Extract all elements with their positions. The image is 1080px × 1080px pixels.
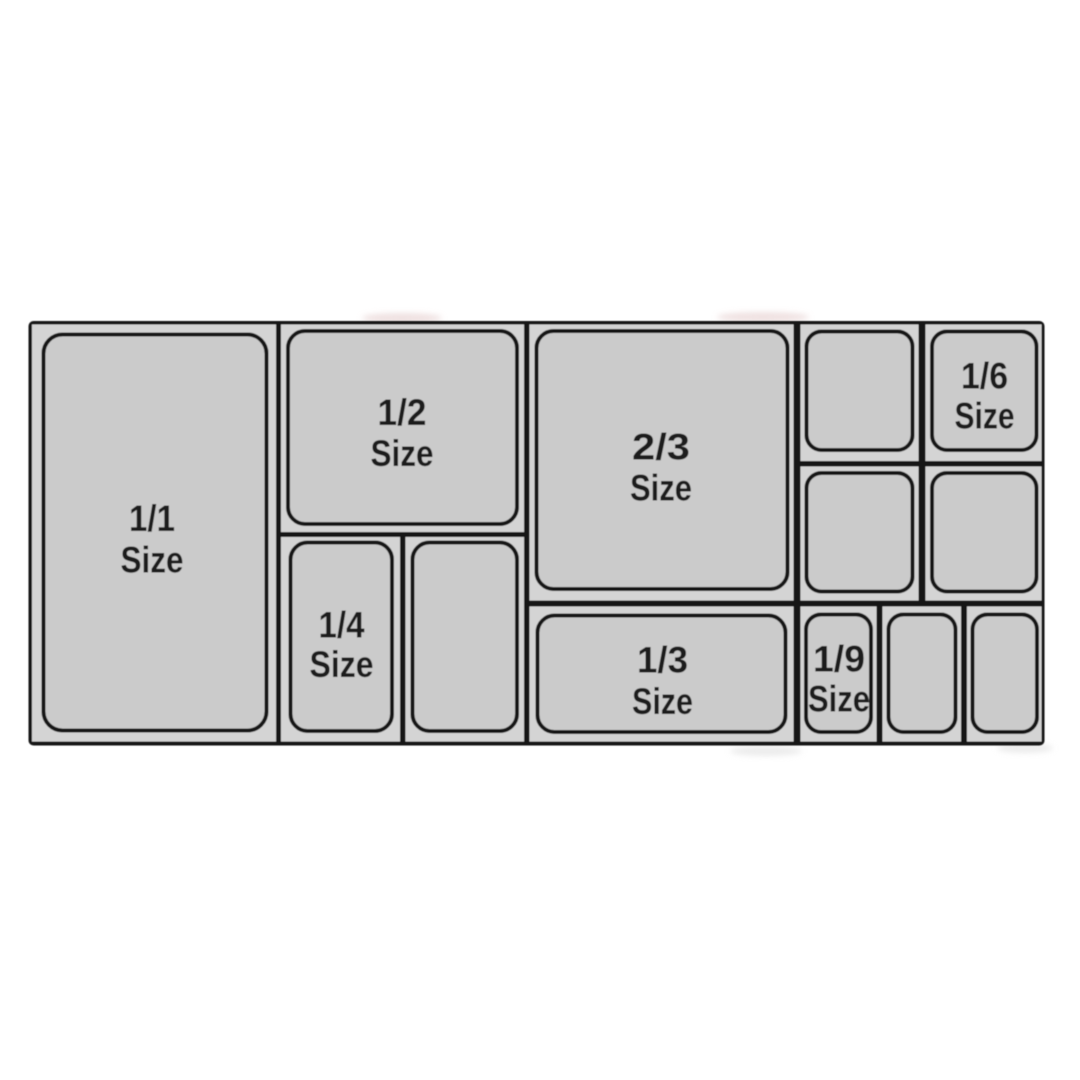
svg-text:1/3: 1/3	[637, 640, 688, 681]
svg-text:1/4: 1/4	[319, 605, 365, 646]
svg-text:Size: Size	[630, 468, 692, 509]
svg-text:Size: Size	[310, 644, 374, 685]
svg-text:1/2: 1/2	[378, 392, 427, 433]
svg-text:1/9: 1/9	[813, 639, 865, 680]
svg-text:Size: Size	[955, 396, 1015, 437]
svg-text:Size: Size	[632, 681, 693, 722]
svg-text:2/3: 2/3	[632, 427, 690, 468]
svg-text:Size: Size	[121, 540, 184, 581]
svg-text:1/6: 1/6	[961, 356, 1008, 397]
svg-text:Size: Size	[371, 433, 434, 474]
svg-text:Size: Size	[808, 679, 870, 720]
svg-text:1/1: 1/1	[129, 498, 175, 539]
